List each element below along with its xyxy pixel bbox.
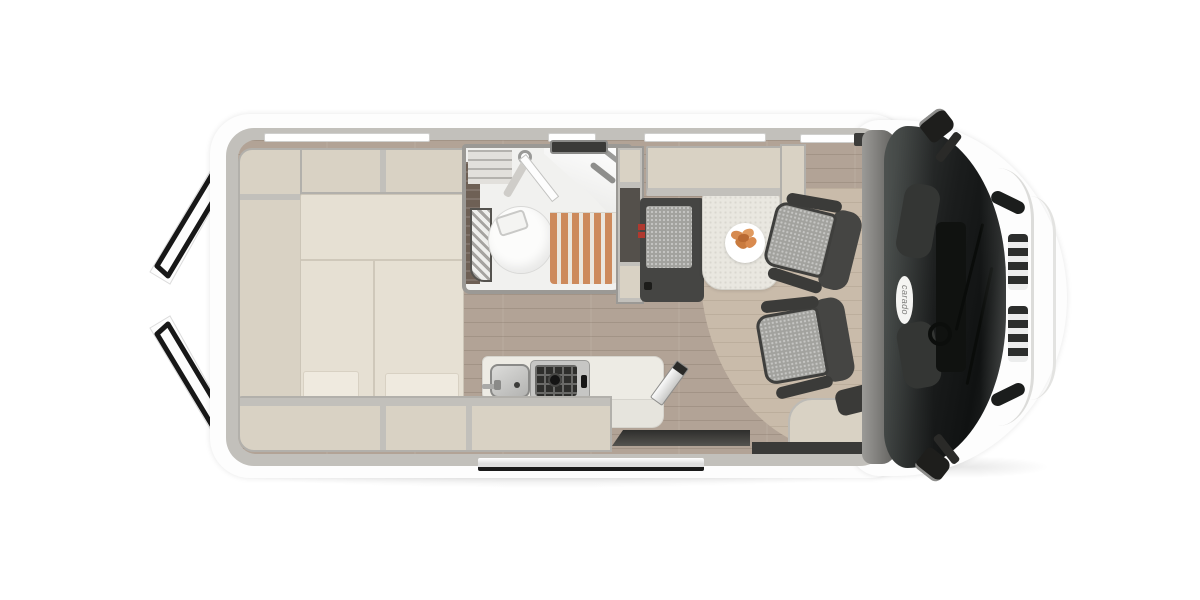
stove-grate <box>535 365 577 396</box>
shelf-divider-1 <box>380 398 386 450</box>
sliding-door-sill <box>612 430 750 446</box>
shower-floor-wood-slats <box>550 212 626 284</box>
bench-latch <box>644 282 652 290</box>
seatbelt-buckle-1 <box>638 224 645 230</box>
dashboard-console-silhouette <box>936 222 966 372</box>
steering-wheel-silhouette <box>928 322 952 346</box>
seat-cushion <box>754 306 829 386</box>
brand-logo-text: carado <box>900 285 910 315</box>
sink-faucet-base <box>494 380 501 390</box>
front-grille-upper <box>1008 234 1028 290</box>
overhead-bins-rear <box>300 148 466 194</box>
cab-seat-driver <box>753 290 864 397</box>
cab-step-shadow-band <box>752 442 880 454</box>
shelf-divider-2 <box>466 398 472 450</box>
window-cab-door <box>800 134 858 143</box>
cabinet-compartment-middle <box>620 188 640 262</box>
front-grille-lower <box>1008 306 1028 362</box>
sink-drain <box>514 382 520 388</box>
sideboard-open-shelving <box>238 396 612 452</box>
dinette-bench <box>640 198 704 302</box>
bathroom-slatted-shelf <box>468 150 512 184</box>
bumper-edge-line <box>1030 196 1056 400</box>
bench-cushion <box>646 206 692 268</box>
kitchen-counter-front <box>610 400 664 428</box>
overhead-shelf-dinette <box>646 146 792 196</box>
electric-entry-step <box>478 458 704 471</box>
shelf-top-rail <box>240 398 610 406</box>
seatbelt-buckle-2 <box>638 232 645 238</box>
rear-wall-shelf <box>238 148 302 438</box>
toilet <box>488 206 554 274</box>
gas-stove <box>530 360 590 400</box>
croissant-5 <box>738 234 749 242</box>
basin-drain <box>580 200 587 207</box>
shelf-divider <box>240 194 300 200</box>
brand-logo-badge: carado <box>896 276 913 324</box>
cabinet-compartment-top <box>620 150 640 182</box>
campervan-floorplan-scene: carado <box>0 0 1200 600</box>
mattress-seam-vertical <box>373 259 375 403</box>
plate <box>725 223 765 263</box>
cabinet-compartment-bottom <box>620 266 640 298</box>
rear-bed-mattress <box>300 194 464 402</box>
stove-knob <box>581 375 587 388</box>
bed-backrest-cushion-left <box>303 371 359 399</box>
window-dinette <box>644 133 766 142</box>
window-rear-left <box>264 133 430 142</box>
roof-vent <box>550 140 608 154</box>
basin-faucet <box>589 161 616 184</box>
bin-divider <box>380 150 386 192</box>
mattress-seam-horizontal <box>301 259 463 261</box>
bathroom <box>462 144 632 294</box>
stove-burner <box>548 373 562 387</box>
toilet-lid <box>495 209 530 237</box>
